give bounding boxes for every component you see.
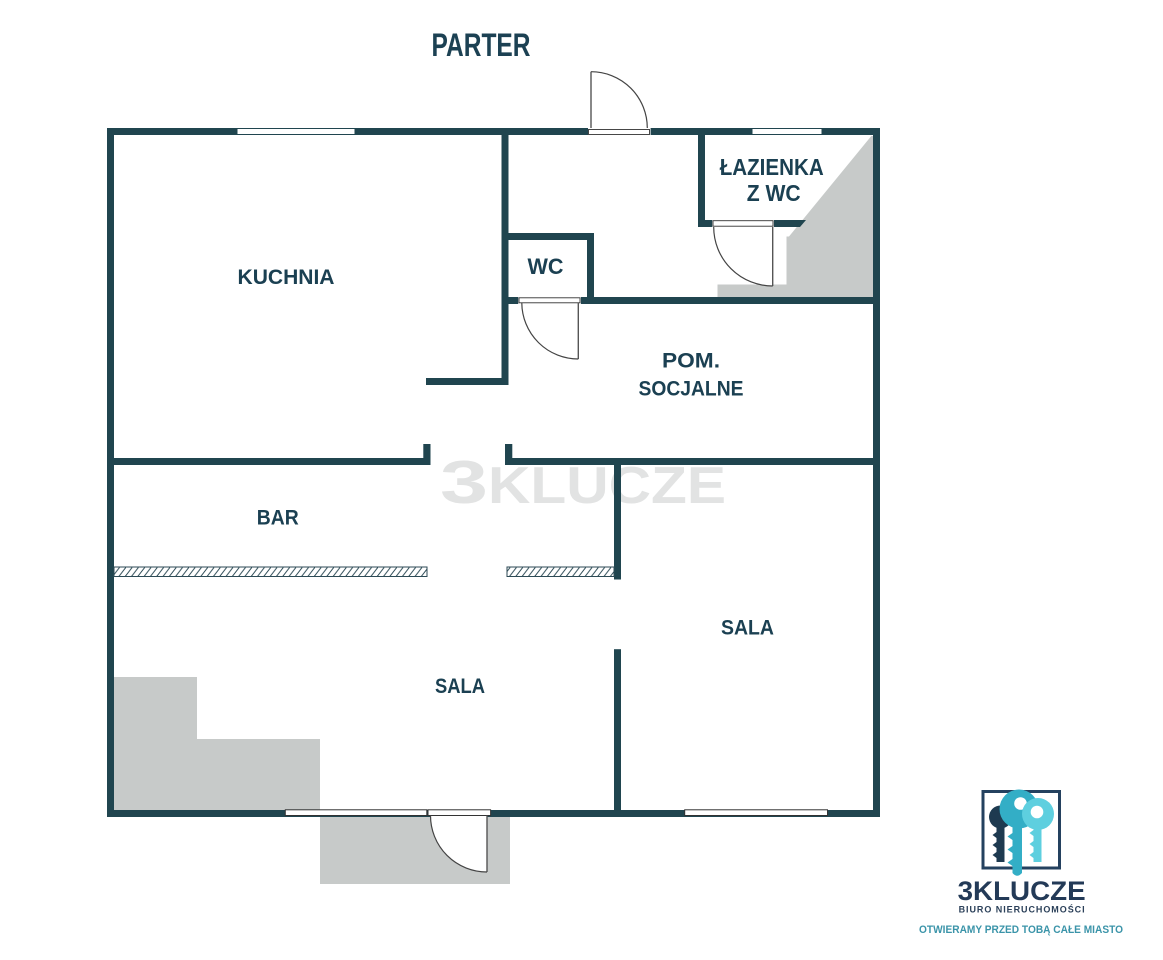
svg-text:SALA: SALA (435, 675, 485, 698)
svg-text:ŁAZIENKA: ŁAZIENKA (720, 154, 824, 180)
svg-text:OTWIERAMY PRZED TOBĄ CAŁE MIAS: OTWIERAMY PRZED TOBĄ CAŁE MIASTO (919, 924, 1123, 936)
svg-text:3KLUCZE: 3KLUCZE (958, 876, 1086, 906)
svg-text:Z WC: Z WC (747, 180, 801, 206)
svg-text:PARTER: PARTER (432, 27, 531, 63)
svg-text:BIURO NIERUCHOMOŚCI: BIURO NIERUCHOMOŚCI (959, 904, 1085, 915)
svg-text:KUCHNIA: KUCHNIA (238, 266, 335, 289)
svg-text:POM.: POM. (662, 350, 720, 373)
svg-text:SALA: SALA (721, 617, 774, 640)
svg-text:SOCJALNE: SOCJALNE (639, 378, 744, 401)
svg-text:WC: WC (528, 254, 564, 279)
svg-text:BAR: BAR (257, 507, 299, 530)
